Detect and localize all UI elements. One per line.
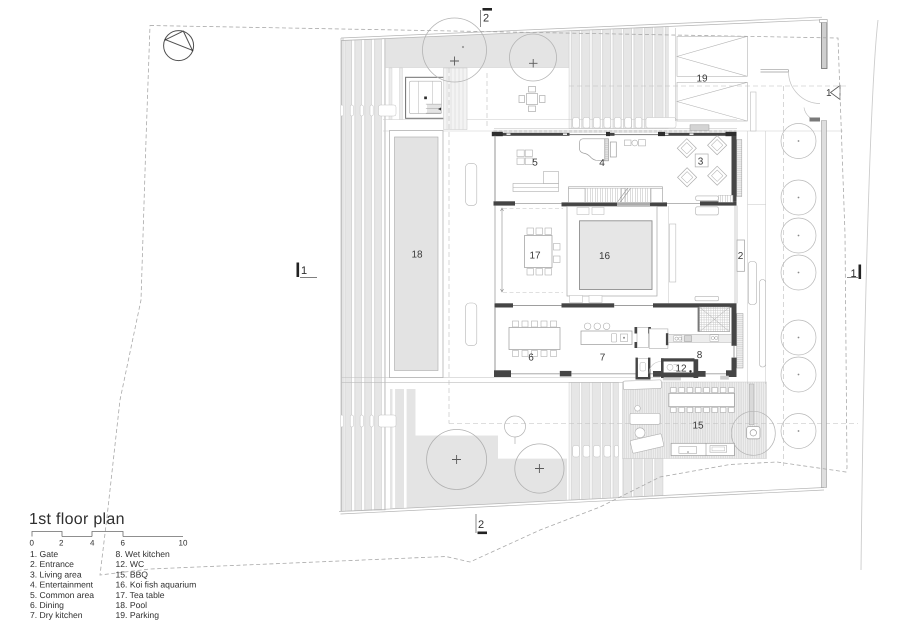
svg-text:5: 5 bbox=[532, 158, 538, 169]
svg-text:7. Dry kitchen: 7. Dry kitchen bbox=[30, 610, 83, 620]
svg-text:6. Dining: 6. Dining bbox=[30, 600, 64, 610]
svg-text:4: 4 bbox=[90, 539, 95, 548]
svg-text:15: 15 bbox=[692, 421, 704, 432]
svg-text:7: 7 bbox=[600, 353, 606, 364]
svg-text:1: 1 bbox=[301, 265, 307, 277]
svg-text:1: 1 bbox=[826, 88, 832, 99]
svg-text:16. Koi fish aquarium: 16. Koi fish aquarium bbox=[116, 580, 197, 590]
svg-text:1. Gate: 1. Gate bbox=[30, 549, 58, 559]
svg-text:6: 6 bbox=[528, 353, 534, 364]
svg-text:6: 6 bbox=[121, 539, 126, 548]
svg-text:1: 1 bbox=[851, 268, 857, 280]
svg-text:4. Entertainment: 4. Entertainment bbox=[30, 580, 94, 590]
svg-text:12. WC: 12. WC bbox=[116, 559, 145, 569]
svg-text:12: 12 bbox=[675, 363, 687, 374]
svg-text:10: 10 bbox=[179, 539, 188, 548]
svg-text:5. Common area: 5. Common area bbox=[30, 590, 94, 600]
svg-text:19. Parking: 19. Parking bbox=[116, 610, 160, 620]
svg-text:19: 19 bbox=[696, 74, 708, 85]
svg-text:3: 3 bbox=[698, 157, 704, 168]
svg-text:15. BBQ: 15. BBQ bbox=[116, 569, 149, 579]
svg-text:2: 2 bbox=[59, 539, 64, 548]
svg-text:2: 2 bbox=[738, 251, 744, 262]
svg-text:4: 4 bbox=[599, 158, 605, 169]
svg-text:2. Entrance: 2. Entrance bbox=[30, 559, 74, 569]
svg-text:0: 0 bbox=[30, 539, 35, 548]
svg-text:8. Wet kitchen: 8. Wet kitchen bbox=[116, 549, 171, 559]
svg-text:2: 2 bbox=[478, 519, 484, 531]
svg-text:1st floor plan: 1st floor plan bbox=[29, 511, 125, 528]
svg-text:18: 18 bbox=[411, 250, 423, 261]
svg-text:17. Tea table: 17. Tea table bbox=[116, 590, 165, 600]
svg-text:17: 17 bbox=[529, 251, 541, 262]
svg-text:2: 2 bbox=[483, 13, 489, 25]
svg-text:18. Pool: 18. Pool bbox=[116, 600, 148, 610]
svg-text:3. Living area: 3. Living area bbox=[30, 569, 82, 579]
svg-text:16: 16 bbox=[599, 251, 611, 262]
